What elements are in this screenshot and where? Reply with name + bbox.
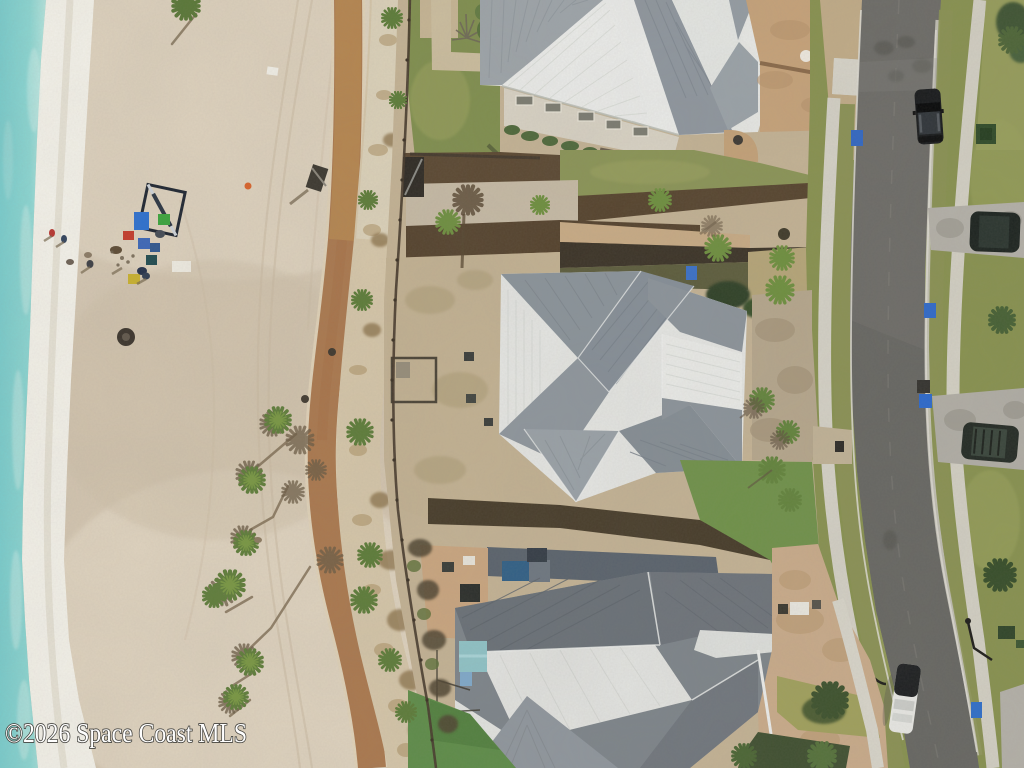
svg-text:©2026 Space Coast MLS: ©2026 Space Coast MLS xyxy=(5,718,247,748)
